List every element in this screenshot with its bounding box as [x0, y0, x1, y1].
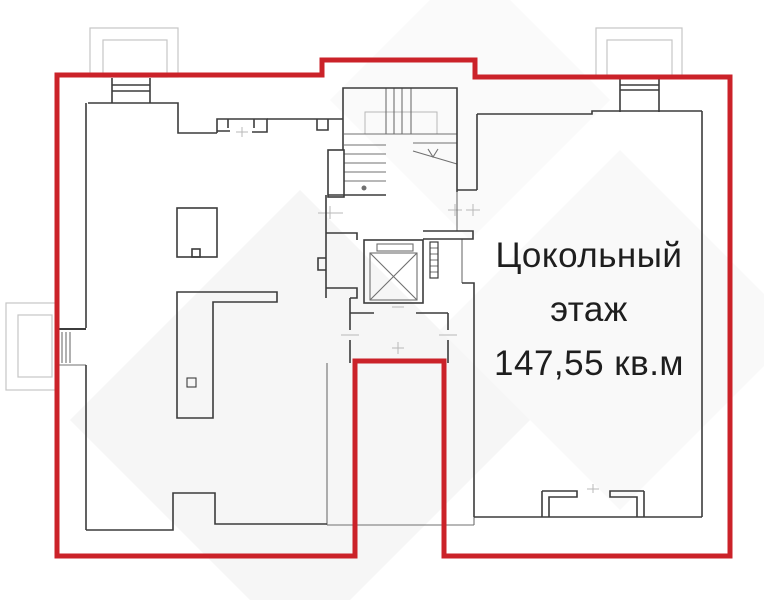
left-room-top-wall-right — [267, 119, 343, 130]
entrance-steps-right — [620, 78, 659, 112]
column-notch — [192, 249, 200, 257]
bay-left-inner — [18, 315, 52, 377]
left-room-top-wall — [88, 103, 217, 133]
area-label: 147,55 кв.м — [494, 344, 684, 383]
duct-hatching — [430, 248, 438, 272]
floor-label-line2: этаж — [550, 290, 628, 329]
bottom-niche-left-jamb — [542, 491, 577, 517]
entrance-steps-left — [112, 78, 150, 103]
elevator-sill — [377, 244, 413, 251]
stair-left-treads — [344, 145, 386, 181]
bay-top-right-inner — [607, 40, 672, 77]
window-mullions — [57, 332, 86, 365]
niche-door-jamb — [228, 119, 254, 128]
bay-top-left-inner — [103, 40, 167, 77]
stair-pier — [328, 150, 344, 197]
bay-top-right-outer — [596, 28, 682, 77]
floorplan-page: Цокольный этаж 147,55 кв.м — [0, 0, 764, 600]
stair-post-dot — [362, 186, 367, 191]
floorplan-canvas: Цокольный этаж 147,55 кв.м — [0, 0, 764, 600]
door-tick — [236, 127, 248, 137]
floor-label-line1: Цокольный — [496, 236, 683, 275]
